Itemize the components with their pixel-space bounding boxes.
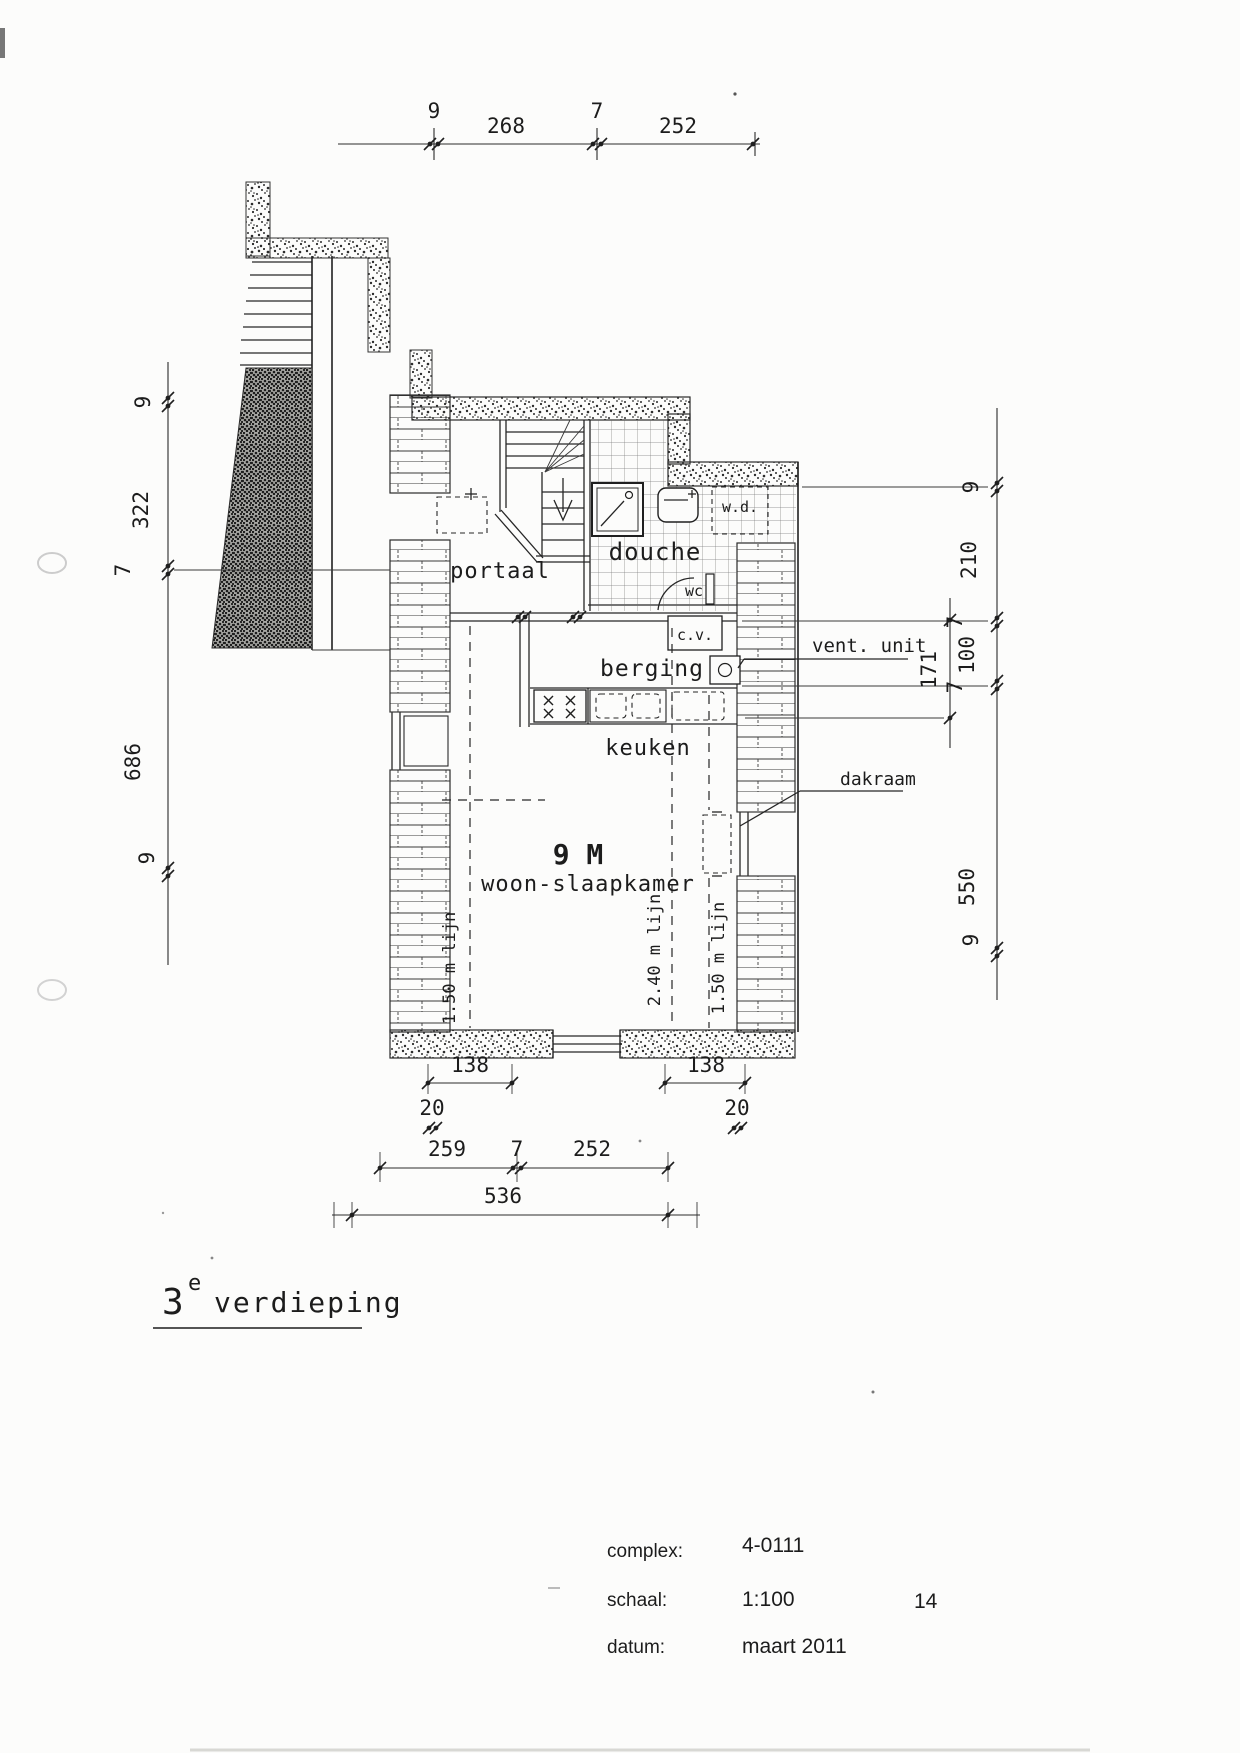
- room-label-wc: wc: [685, 582, 703, 600]
- dim-right-7b: 7: [943, 681, 967, 694]
- height-line-right-label: 1.50 m lijn: [709, 902, 729, 1015]
- room-label-keuken: keuken: [605, 736, 690, 761]
- dim-bottom-259: 259: [428, 1137, 466, 1161]
- dim-top-252: 252: [659, 114, 697, 138]
- dim-right-171: 171: [917, 651, 941, 689]
- vent-unit-box: [710, 656, 740, 684]
- footer-date-label: datum:: [607, 1637, 665, 1658]
- dim-left-7: 7: [111, 564, 135, 577]
- scanned-floorplan-page: portaal douche wc w.d. c.v. berging keuk…: [0, 0, 1240, 1753]
- existing-building-mass: [212, 368, 312, 648]
- room-label-berging: berging: [600, 656, 704, 682]
- dim-right-9-bottom: 9: [959, 934, 983, 947]
- dim-right-100: 100: [955, 636, 979, 674]
- dim-bottom-252: 252: [573, 1137, 611, 1161]
- dim-offset-left: 20: [419, 1096, 444, 1120]
- dim-left-686: 686: [121, 743, 145, 781]
- dim-top-268: 268: [487, 114, 525, 138]
- height-line-mid-label: 2.40 m lijn: [645, 894, 665, 1007]
- footer-date-value: maart 2011: [742, 1635, 847, 1658]
- floorplan-drawing: portaal douche wc w.d. c.v. berging keuk…: [0, 0, 1240, 1753]
- dim-offset-right: 20: [724, 1096, 749, 1120]
- dim-right-7a: 7: [943, 616, 967, 629]
- room-label-douche: douche: [609, 538, 702, 566]
- dim-bottom-total: 536: [484, 1184, 522, 1208]
- footer-scale-label: schaal:: [607, 1590, 667, 1611]
- dimension-rows-bottom: 138 138 20 20 259 7 252 536: [332, 1053, 751, 1228]
- living-room-lines: [442, 626, 731, 1028]
- dim-window-left: 138: [451, 1053, 489, 1077]
- hole-punch-bottom: [38, 980, 66, 1000]
- footer-complex-value: 4-0111: [742, 1534, 804, 1557]
- dim-top-7: 7: [591, 99, 604, 123]
- dimension-chain-top: 9 268 7 252: [338, 99, 760, 160]
- dim-top-9: 9: [428, 99, 441, 123]
- room-label-cv: c.v.: [677, 626, 713, 644]
- footer-block: complex: 4-0111 schaal: 1:100 datum: maa…: [607, 1534, 938, 1658]
- dim-right-9-top: 9: [959, 481, 983, 494]
- dim-left-9-bottom: 9: [135, 852, 159, 865]
- stove: [534, 690, 586, 722]
- footer-page-number: 14: [914, 1590, 938, 1613]
- room-label-wd: w.d.: [722, 498, 758, 516]
- height-line-left-label: 1.50 m lijn: [440, 912, 460, 1025]
- washbasin: [658, 488, 698, 522]
- vent-unit-label: vent. unit: [812, 635, 926, 657]
- dim-bottom-7: 7: [511, 1137, 524, 1161]
- footer-complex-label: complex:: [607, 1541, 683, 1562]
- kitchen-counter: [530, 688, 737, 724]
- roof-window-wall-break: [737, 812, 795, 876]
- title-floor-sup: e: [188, 1271, 201, 1296]
- stove-burners: [544, 696, 575, 718]
- shower-tray: [592, 483, 643, 536]
- title-floor-number: 3: [162, 1282, 184, 1323]
- closet-dashed-box: [437, 497, 487, 533]
- title-block: 3 e verdieping: [153, 1271, 403, 1328]
- room-label-portaal: portaal: [450, 559, 550, 584]
- roof-window-dashed: [703, 815, 731, 873]
- room-label-living: woon-slaapkamer: [481, 872, 695, 897]
- hole-punch-top: [38, 553, 66, 573]
- kitchen-appliance: [672, 692, 724, 720]
- footer-scale-value: 1:100: [742, 1588, 795, 1611]
- dim-left-322: 322: [129, 491, 153, 529]
- title-floor-name: verdieping: [214, 1286, 403, 1319]
- dakraam-label: dakraam: [840, 769, 916, 790]
- left-window: [390, 712, 450, 770]
- room-label-area: 9 M: [553, 838, 604, 871]
- dim-right-550: 550: [955, 868, 979, 906]
- exterior-stair-treads: [240, 262, 312, 365]
- dim-left-9-top: 9: [131, 396, 155, 409]
- stair-down-arrow: [554, 478, 572, 520]
- dim-right-210: 210: [957, 541, 981, 579]
- dim-window-right: 138: [687, 1053, 725, 1077]
- sink-unit: [590, 690, 666, 722]
